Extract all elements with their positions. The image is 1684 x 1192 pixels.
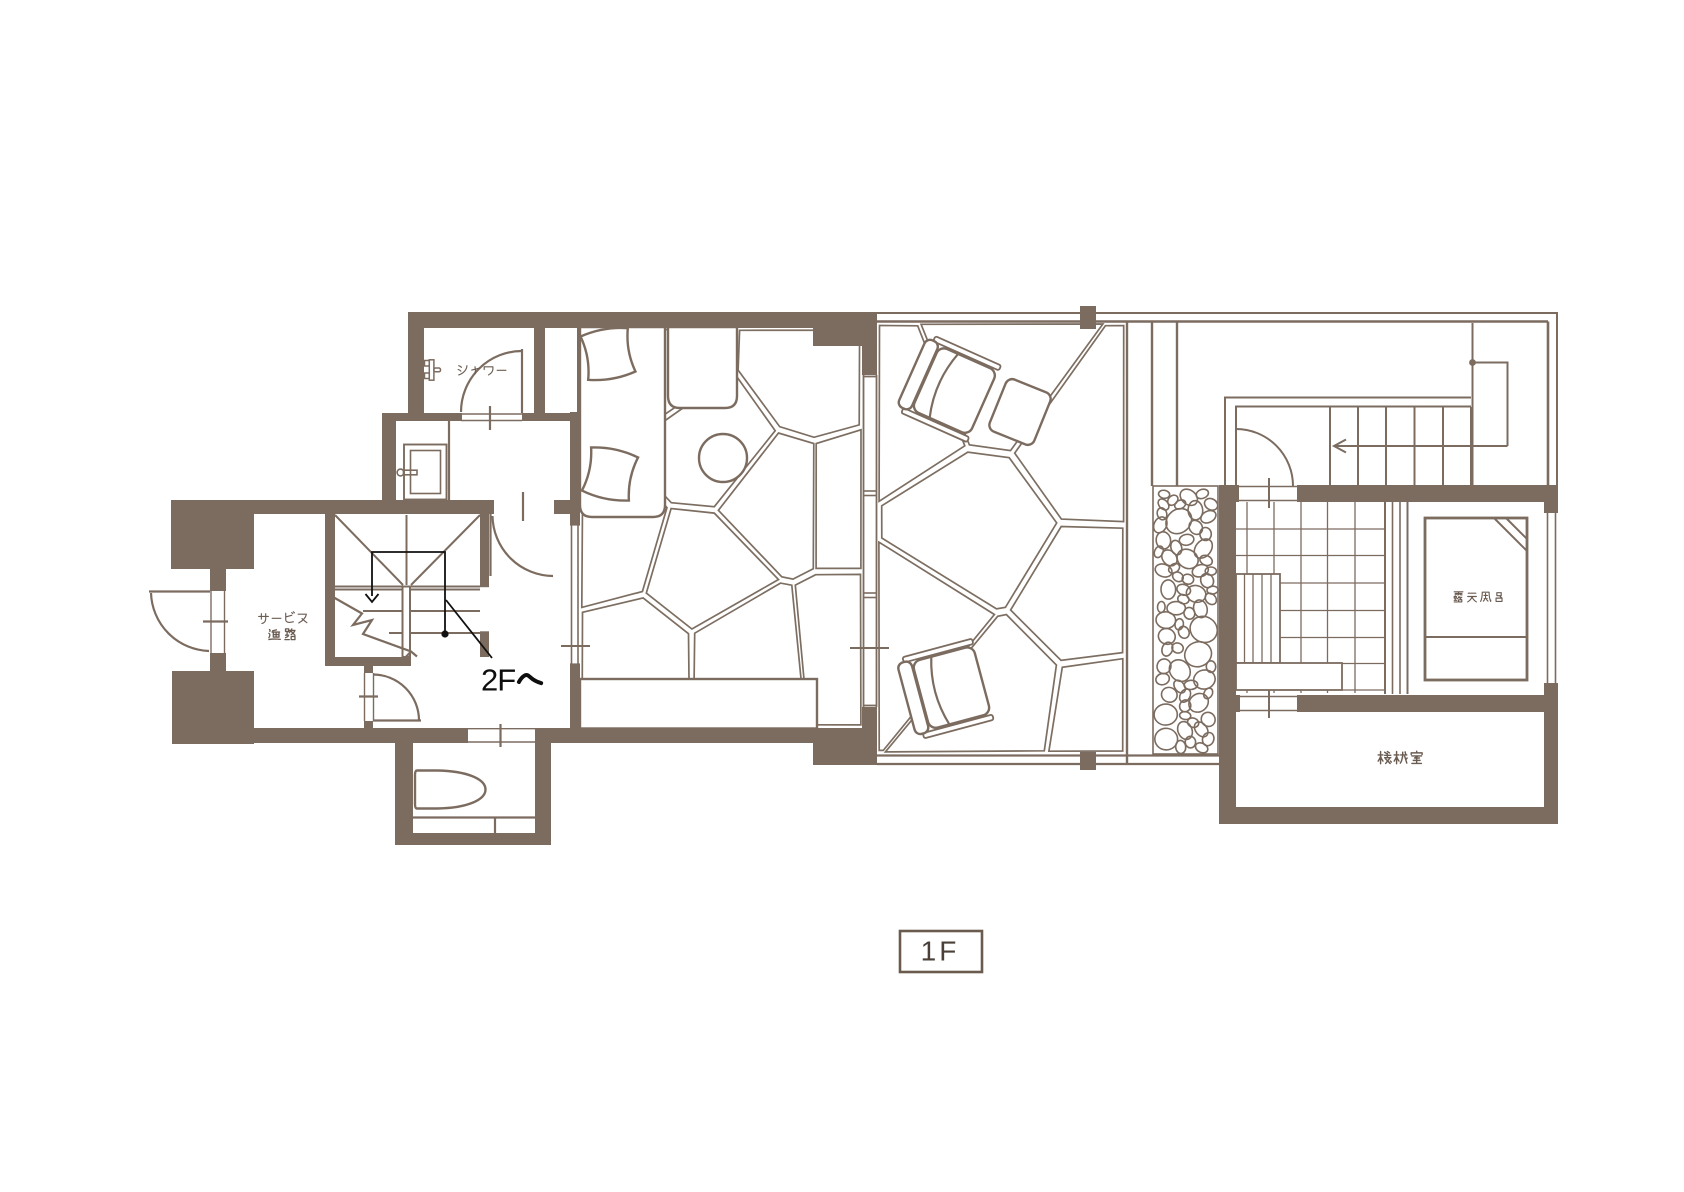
svg-text:1F: 1F xyxy=(921,936,960,967)
svg-text:2F: 2F xyxy=(481,663,515,698)
